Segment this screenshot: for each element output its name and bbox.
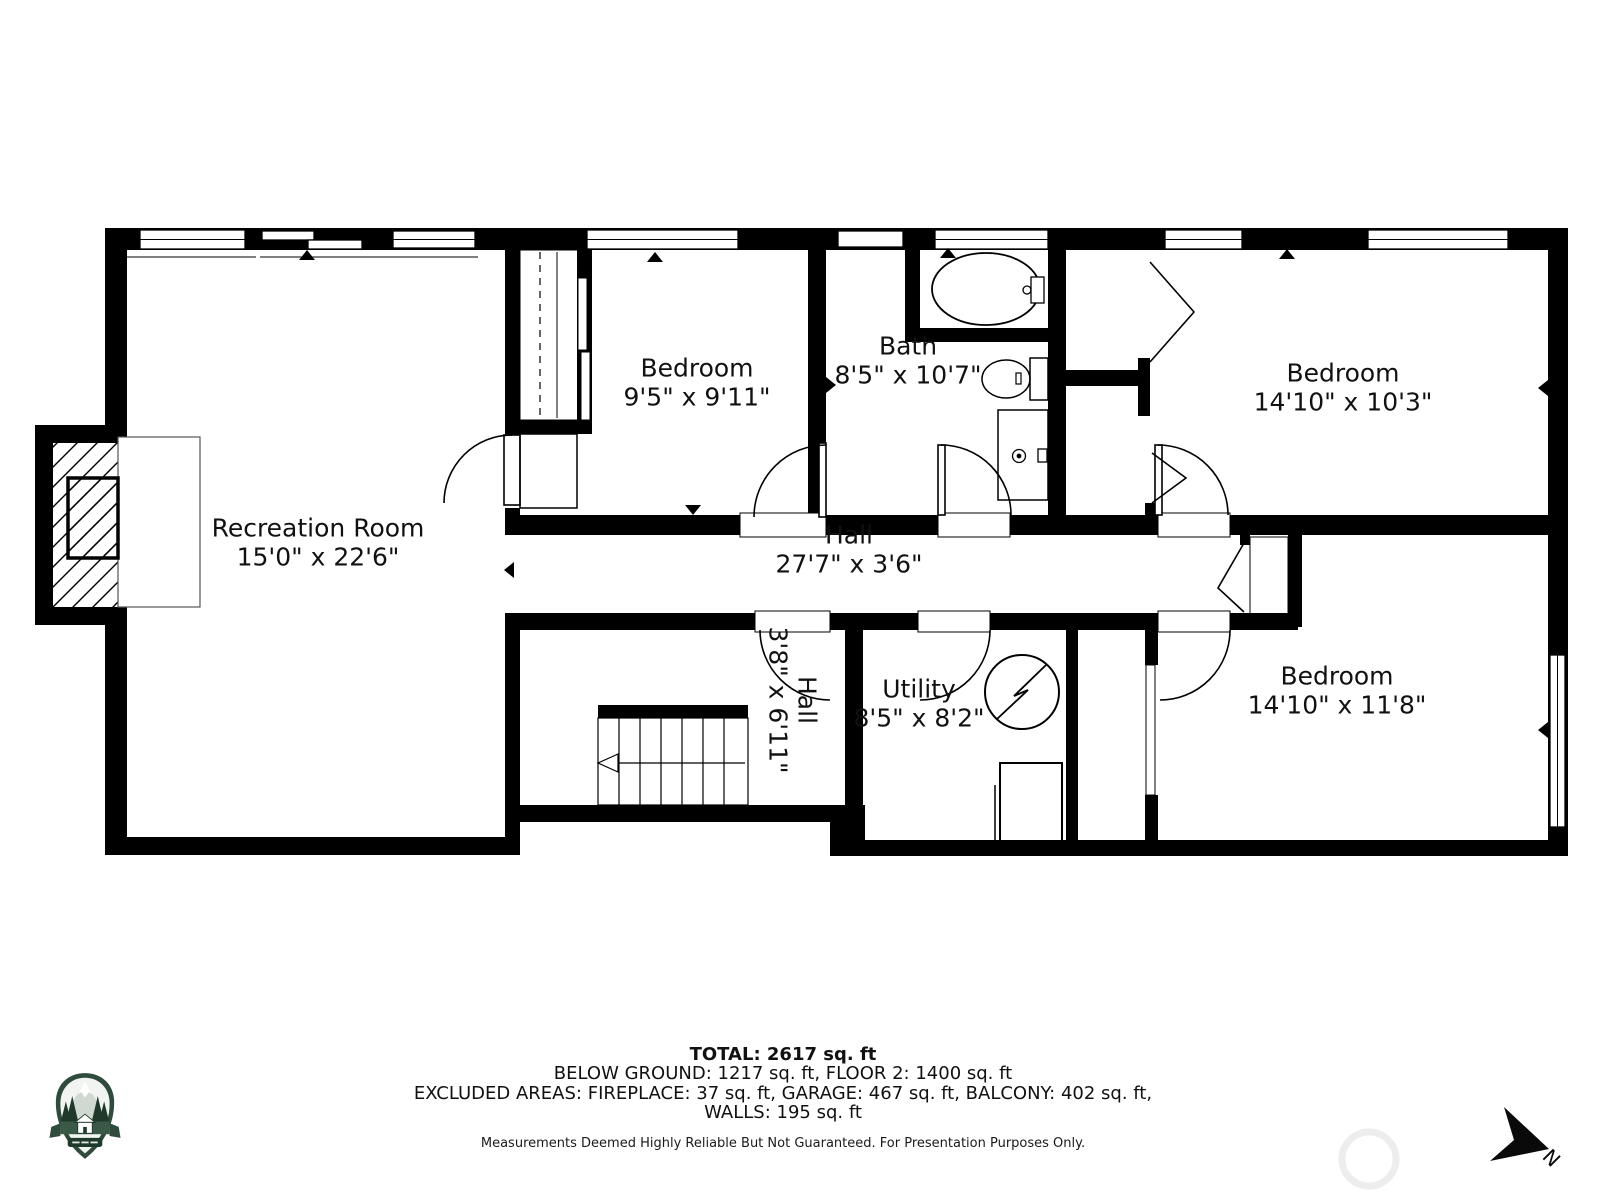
toilet — [982, 358, 1048, 400]
room-dims: 3'8" x 6'11" — [764, 627, 793, 774]
room-name: Recreation Room — [212, 515, 425, 544]
room-dims: 9'5" x 9'11" — [624, 383, 771, 412]
fireplace — [53, 437, 200, 607]
room-dims: 8'5" x 8'2" — [853, 704, 984, 733]
appliance — [1000, 763, 1062, 843]
room-name: Hall — [776, 522, 923, 551]
floor-plan-page: Recreation Room 15'0" x 22'6" Bedroom 9'… — [0, 0, 1600, 1200]
room-name: Utility — [853, 676, 984, 705]
room-dims: 14'10" x 11'8" — [1248, 691, 1427, 720]
room-dims: 14'10" x 10'3" — [1254, 388, 1433, 417]
area-summary: TOTAL: 2617 sq. ft BELOW GROUND: 1217 sq… — [283, 1046, 1283, 1123]
area-breakdown-line2: EXCLUDED AREAS: FIREPLACE: 37 sq. ft, GA… — [283, 1085, 1283, 1103]
room-label-bath: Bath 8'5" x 10'7" — [835, 333, 982, 390]
area-breakdown-line1: BELOW GROUND: 1217 sq. ft, FLOOR 2: 1400… — [283, 1065, 1283, 1083]
stairs — [598, 718, 748, 805]
room-name: Bedroom — [1254, 360, 1433, 389]
north-arrow-icon — [1490, 1107, 1549, 1161]
room-label-bedroom2: Bedroom 14'10" x 10'3" — [1254, 360, 1433, 417]
room-dims: 27'7" x 3'6" — [776, 550, 923, 579]
room-label-hall2: Hall 3'8" x 6'11" — [764, 627, 821, 774]
room-label-bedroom1: Bedroom 9'5" x 9'11" — [624, 355, 771, 412]
watermark-circle-icon — [1342, 1132, 1396, 1186]
room-label-bedroom3: Bedroom 14'10" x 11'8" — [1248, 663, 1427, 720]
room-label-hall: Hall 27'7" x 3'6" — [776, 522, 923, 579]
area-breakdown-line3: WALLS: 195 sq. ft — [283, 1104, 1283, 1122]
room-name: Bath — [835, 333, 982, 362]
room-name: Bedroom — [1248, 663, 1427, 692]
total-area: TOTAL: 2617 sq. ft — [283, 1046, 1283, 1064]
floor-plan-drawing — [0, 0, 1600, 1200]
room-label-recreation: Recreation Room 15'0" x 22'6" — [212, 515, 425, 572]
mountain-cabin-badge-icon — [44, 1066, 126, 1166]
utility-fixtures — [985, 655, 1062, 843]
disclaimer-text: Measurements Deemed Highly Reliable But … — [283, 1136, 1283, 1151]
room-dims: 8'5" x 10'7" — [835, 361, 982, 390]
room-dims: 15'0" x 22'6" — [212, 543, 425, 572]
room-name: Bedroom — [624, 355, 771, 384]
room-name: Hall — [792, 627, 821, 774]
doors — [444, 262, 1244, 700]
room-label-utility: Utility 8'5" x 8'2" — [853, 676, 984, 733]
